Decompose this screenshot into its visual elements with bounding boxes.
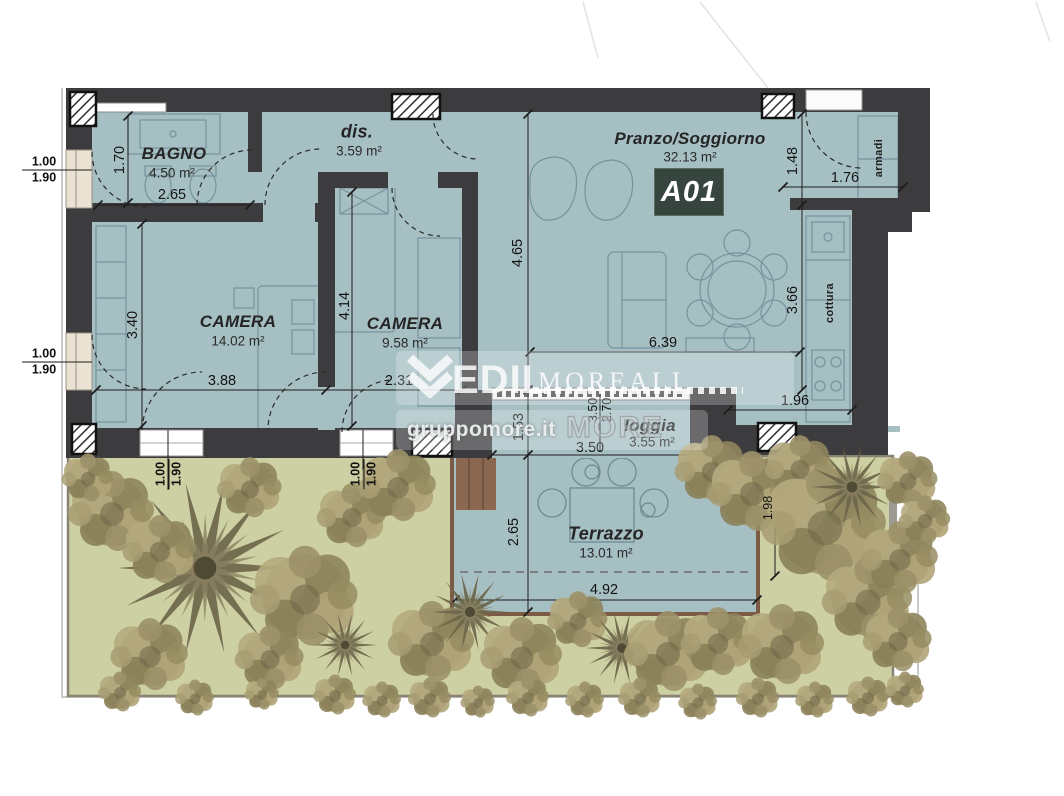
window-height: 1.90 <box>29 171 59 186</box>
room-label-soggiorno: Pranzo/Soggiorno <box>614 129 765 149</box>
room-area-loggia: 3.55 m² <box>629 435 675 450</box>
room-area-terrazzo: 13.01 m² <box>579 546 632 561</box>
dim-bagno-h: 1.70 <box>112 146 128 174</box>
dim-loggia-a: 3.50 <box>586 398 600 422</box>
dim-camera2-h: 4.14 <box>337 292 353 320</box>
room-label-bagno: BAGNO <box>142 144 207 164</box>
window-dims-bottom-2: 1.00 1.90 <box>349 459 380 489</box>
room-label-terrazzo: Terrazzo <box>568 524 644 545</box>
dim-entry-h: 1.48 <box>785 147 801 175</box>
dim-kitchen-w: 1.96 <box>781 393 809 409</box>
dim-camera1-h: 3.40 <box>125 311 141 339</box>
fixture-label-cottura: cottura <box>824 283 836 323</box>
room-label-camera1: CAMERA <box>200 312 276 332</box>
window-width: 1.00 <box>349 459 365 489</box>
dim-loggia-h: 1.53 <box>511 413 527 441</box>
window-width: 1.00 <box>154 459 170 489</box>
floor-plan: BAGNO 4.50 m² dis. 3.59 m² CAMERA 14.02 … <box>0 0 1064 796</box>
dim-loggia-b: 2.70 <box>600 398 614 422</box>
room-area-camera2: 9.58 m² <box>382 336 428 351</box>
dim-kitchen-h: 3.66 <box>785 286 801 314</box>
room-label-dis: dis. <box>341 122 373 143</box>
room-area-bagno: 4.50 m² <box>149 166 195 181</box>
dim-bagno-w: 2.65 <box>158 187 186 203</box>
room-label-loggia: loggia <box>624 416 676 436</box>
unit-badge: A01 <box>654 168 724 216</box>
dim-garden-side: 1.98 <box>761 496 775 520</box>
room-label-camera2: CAMERA <box>367 314 443 334</box>
window-dims-left-1: 1.00 1.90 <box>29 155 59 186</box>
window-dims-bottom-1: 1.00 1.90 <box>154 459 185 489</box>
window-dims-left-2: 1.00 1.90 <box>29 347 59 378</box>
room-area-dis: 3.59 m² <box>336 144 382 159</box>
dim-terrazzo-h: 2.65 <box>506 518 522 546</box>
dim-entry-w: 1.76 <box>831 170 859 186</box>
dim-camera2-w: 2.31 <box>385 373 413 389</box>
fixture-label-armadi: armadi <box>873 139 885 177</box>
dim-soggiorno-w: 6.39 <box>649 335 677 351</box>
apartment-floor <box>92 110 952 458</box>
window-width: 1.00 <box>29 155 59 171</box>
dim-camera1-w: 3.88 <box>208 373 236 389</box>
window-height: 1.90 <box>365 459 380 489</box>
dim-terrazzo-w: 4.92 <box>590 582 618 598</box>
floor-plan-canvas <box>0 0 1064 796</box>
window-width: 1.00 <box>29 347 59 363</box>
dim-soggiorno-h: 4.65 <box>510 239 526 267</box>
room-area-soggiorno: 32.13 m² <box>663 150 716 165</box>
window-height: 1.90 <box>170 459 185 489</box>
room-area-camera1: 14.02 m² <box>211 334 264 349</box>
dim-loggia-w: 3.50 <box>576 440 604 456</box>
window-height: 1.90 <box>29 363 59 378</box>
